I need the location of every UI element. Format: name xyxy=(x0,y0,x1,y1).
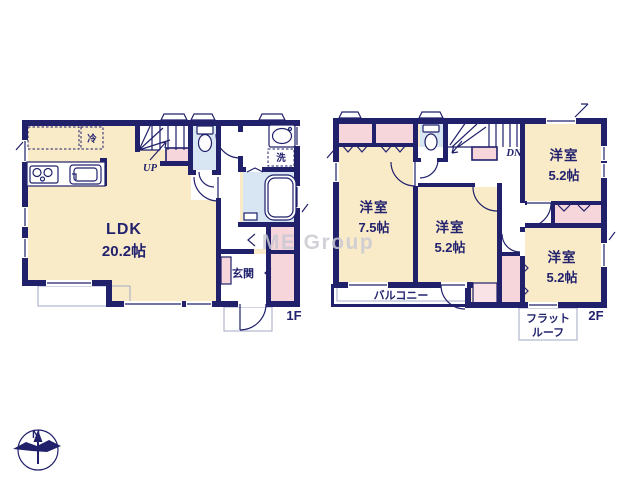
floor-1f-plan: LDK 20.2帖 UP 冷 洗 玄関 1F xyxy=(16,114,308,331)
1f-shoe-cabinet xyxy=(221,257,231,284)
flat-roof-label-2: ルーフ xyxy=(532,327,564,339)
floor-2f-label: 2F xyxy=(588,308,603,323)
room-topright-label: 洋室 xyxy=(550,147,579,163)
laundry-label: 洗 xyxy=(276,152,286,164)
2f-closet-topleft-b xyxy=(376,124,413,143)
floorplan-svg: LDK 20.2帖 UP 冷 洗 玄関 1F xyxy=(0,0,640,480)
2f-hall-floor xyxy=(418,147,520,183)
2f-hall-pocket xyxy=(502,183,520,252)
washbasin-icon xyxy=(269,125,295,147)
ldk-label: LDK xyxy=(106,221,142,238)
floorplan-image: LDK 20.2帖 UP 冷 洗 玄関 1F xyxy=(0,0,640,480)
room-left-label: 洋室 xyxy=(360,199,389,215)
2f-under-stairs-storage xyxy=(472,147,497,160)
toilet-icon-1f xyxy=(197,126,213,152)
kitchen-counter-icon xyxy=(27,162,105,186)
watermark: ME Group xyxy=(262,231,374,254)
2f-storage-box xyxy=(473,283,497,304)
floor-2f-plan: 洋室 7.5帖 洋室 5.2帖 洋室 5.2帖 洋室 5.2帖 DN バルコニー… xyxy=(327,104,615,340)
stairs-dn-label: DN xyxy=(505,148,522,159)
room-middle-label: 洋室 xyxy=(436,219,465,235)
north-compass-icon: N xyxy=(13,429,61,470)
floor-1f-label: 1F xyxy=(286,308,301,323)
room-middle-size: 5.2帖 xyxy=(434,240,465,255)
room-bottomright-label: 洋室 xyxy=(548,249,577,265)
refrigerator-label: 冷 xyxy=(87,133,97,145)
2f-closet-topright xyxy=(555,205,603,223)
room-topright-size: 5.2帖 xyxy=(548,168,579,183)
entrance-label: 玄関 xyxy=(232,266,254,280)
2f-doorway-floor xyxy=(525,203,551,223)
ldk-size-label: 20.2帖 xyxy=(102,242,146,260)
flat-roof-label-1: フラット xyxy=(526,312,570,325)
toilet-icon-2f xyxy=(423,125,439,150)
2f-closet-topleft-a xyxy=(339,124,372,143)
1f-lower-hall-floor xyxy=(221,227,266,249)
compass-north-label: N xyxy=(32,429,40,441)
stairs-up-label: UP xyxy=(143,163,158,174)
2f-closet-bottomright xyxy=(502,255,520,303)
room-bottomright-size: 5.2帖 xyxy=(546,270,577,285)
2f-stairs-floor xyxy=(448,122,520,147)
balcony-label: バルコニー xyxy=(374,289,429,302)
